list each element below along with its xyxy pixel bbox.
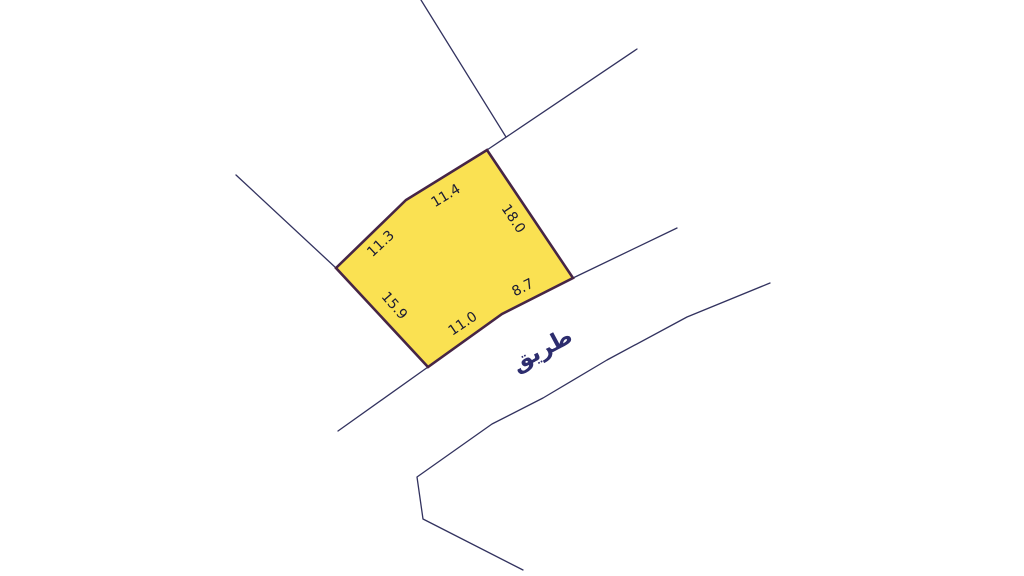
road-boundary-line-4 bbox=[573, 228, 677, 278]
road-boundary-line-0 bbox=[421, 0, 506, 137]
road-boundary-line-2 bbox=[236, 175, 336, 268]
road-boundary-line-3 bbox=[338, 367, 428, 431]
parcel-map-svg: 11.418.08.711.015.911.3طريق bbox=[0, 0, 1024, 576]
cadastral-map-stage: 11.418.08.711.015.911.3طريق bbox=[0, 0, 1024, 576]
road-boundary-line-1 bbox=[487, 49, 637, 150]
road-name-label: طريق bbox=[507, 323, 577, 377]
